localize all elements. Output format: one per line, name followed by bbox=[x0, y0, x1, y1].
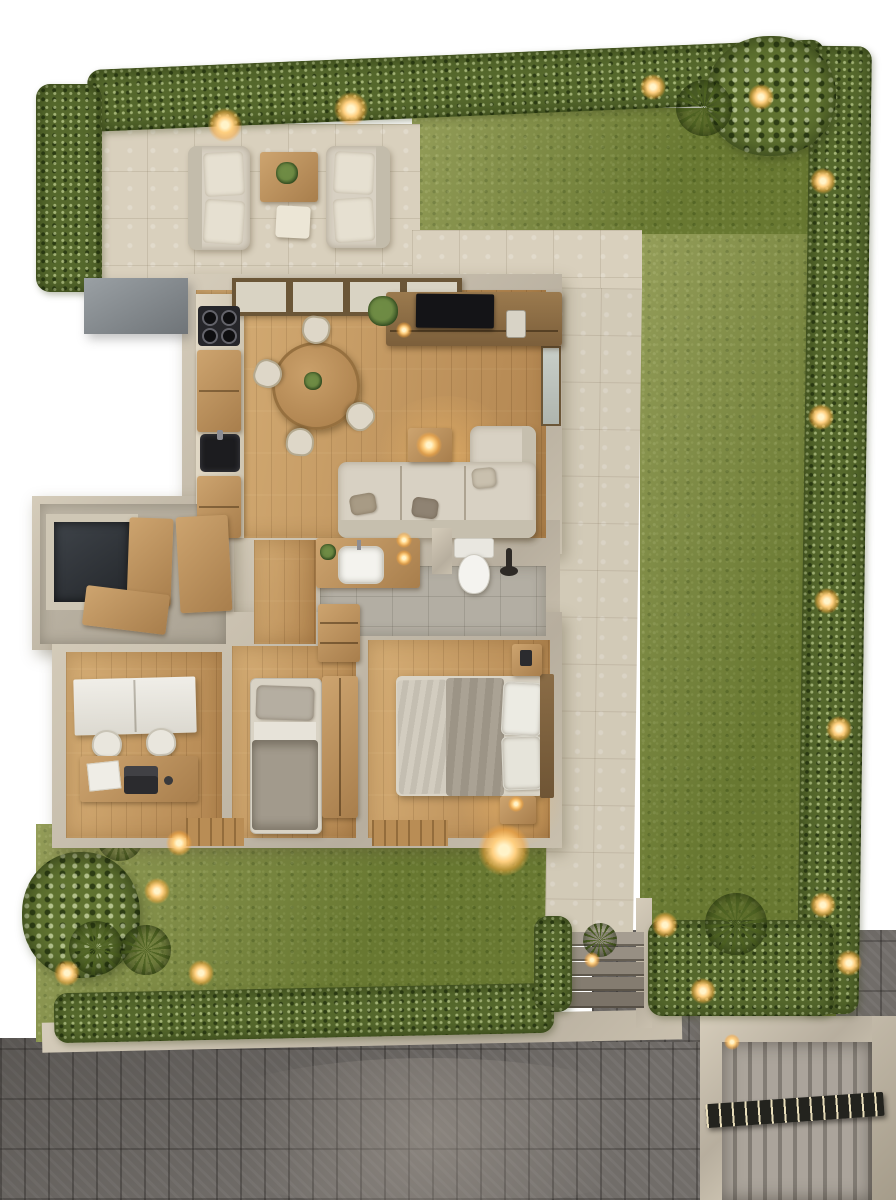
console-plant bbox=[368, 296, 398, 326]
bed-throw-blanket bbox=[397, 680, 449, 795]
patio-side-table bbox=[275, 205, 311, 239]
bed-duvet bbox=[446, 678, 504, 796]
office-cabinet bbox=[73, 676, 196, 735]
garden-light bbox=[652, 912, 678, 938]
hedge-garden-bottom bbox=[54, 983, 555, 1043]
rear-wood-door bbox=[186, 818, 244, 846]
single-bed-sheet bbox=[254, 722, 316, 740]
sofa-cushion bbox=[203, 151, 245, 197]
garden-light bbox=[584, 952, 600, 968]
sideboard-shelf-line bbox=[390, 330, 558, 332]
wardrobe-door-line bbox=[339, 678, 341, 816]
garden-light bbox=[166, 830, 192, 856]
garden-light bbox=[826, 716, 852, 742]
garden-light bbox=[808, 404, 834, 430]
glass-door-right-wall bbox=[541, 346, 561, 426]
closet-shelf-line bbox=[320, 622, 358, 624]
patio-sofa-left bbox=[188, 146, 250, 250]
hedge-left bbox=[36, 84, 102, 292]
office-chair bbox=[145, 727, 177, 757]
tv-screen bbox=[416, 294, 494, 329]
closet-nook bbox=[318, 604, 360, 662]
patio-sofa-right bbox=[326, 146, 390, 248]
garden-light bbox=[144, 878, 170, 904]
closet-shelf-line bbox=[320, 642, 358, 644]
garden-light bbox=[814, 588, 840, 614]
console-lamp bbox=[396, 322, 412, 338]
cabinet-split bbox=[199, 506, 239, 508]
garden-light bbox=[640, 74, 666, 100]
bathroom-basin bbox=[338, 546, 384, 584]
wardrobe bbox=[322, 676, 358, 818]
cabinet-split bbox=[199, 390, 239, 392]
garden-light bbox=[188, 960, 214, 986]
basin-faucet bbox=[357, 540, 361, 550]
shelf-device bbox=[520, 650, 532, 666]
sofa-cushion bbox=[333, 197, 376, 244]
garden-light bbox=[690, 978, 716, 1004]
sofa-pillow bbox=[411, 496, 440, 519]
garden-light bbox=[810, 168, 836, 194]
bushes-left-of-steps bbox=[534, 916, 572, 1012]
burner bbox=[202, 328, 218, 344]
sofa-seam bbox=[464, 466, 466, 520]
garden-light bbox=[208, 108, 242, 142]
bathroom-sconce bbox=[396, 550, 412, 566]
floor-hallway bbox=[254, 540, 316, 644]
living-lamp bbox=[416, 432, 442, 458]
cooktop bbox=[198, 306, 240, 346]
burner bbox=[221, 310, 237, 326]
flat-roof-slab bbox=[84, 278, 188, 334]
sofa-seam bbox=[400, 466, 402, 520]
rear-wood-door bbox=[372, 820, 448, 846]
gate-wall-light bbox=[724, 1034, 740, 1050]
palm-plant bbox=[676, 80, 732, 136]
headboard bbox=[540, 674, 554, 798]
garden-light bbox=[836, 950, 862, 976]
palm-plant bbox=[705, 893, 767, 955]
laptop bbox=[124, 766, 158, 794]
bathroom-divider-wall bbox=[432, 528, 452, 574]
bathroom-sconce bbox=[396, 532, 412, 548]
toilet-brush-base bbox=[500, 566, 518, 576]
kitchen-cabinet-upper bbox=[197, 350, 241, 432]
burner bbox=[221, 328, 237, 344]
patio-table-plant bbox=[276, 162, 298, 184]
dining-centerpiece-plant bbox=[304, 372, 322, 390]
step-tread bbox=[560, 977, 644, 991]
hedge-right bbox=[796, 46, 872, 1015]
bed-pillow bbox=[501, 735, 543, 790]
wall-light-glow bbox=[478, 824, 530, 876]
floor-plan-render: Top-down 3D architectural render of a si… bbox=[0, 0, 896, 1200]
single-bed-blanket bbox=[252, 740, 318, 830]
sofa-back bbox=[376, 146, 390, 248]
speaker bbox=[506, 310, 526, 338]
single-bed-pillow bbox=[255, 685, 314, 721]
desk-mug bbox=[164, 776, 173, 785]
entry-door-panel bbox=[176, 515, 233, 614]
garden-light bbox=[334, 92, 368, 126]
sofa-cushion bbox=[333, 151, 375, 195]
vanity-plant bbox=[320, 544, 336, 560]
agave-plant bbox=[121, 925, 171, 975]
step-tread bbox=[560, 962, 644, 976]
street-light-wash bbox=[170, 1058, 690, 1200]
burner bbox=[202, 310, 218, 326]
desk-papers bbox=[87, 760, 122, 791]
faucet bbox=[217, 430, 223, 440]
step-tread bbox=[560, 992, 644, 1008]
kitchen-sink bbox=[200, 434, 240, 472]
garden-light bbox=[810, 892, 836, 918]
garden-light bbox=[54, 960, 80, 986]
cabinet-split bbox=[133, 680, 136, 732]
sofa-pillow bbox=[471, 467, 497, 489]
garden-light bbox=[748, 84, 774, 110]
sofa-cushion bbox=[203, 199, 246, 246]
nightstand-lamp bbox=[508, 796, 524, 812]
sofa-back bbox=[188, 146, 202, 250]
toilet-bowl bbox=[458, 554, 490, 594]
bed-pillow bbox=[501, 681, 544, 737]
